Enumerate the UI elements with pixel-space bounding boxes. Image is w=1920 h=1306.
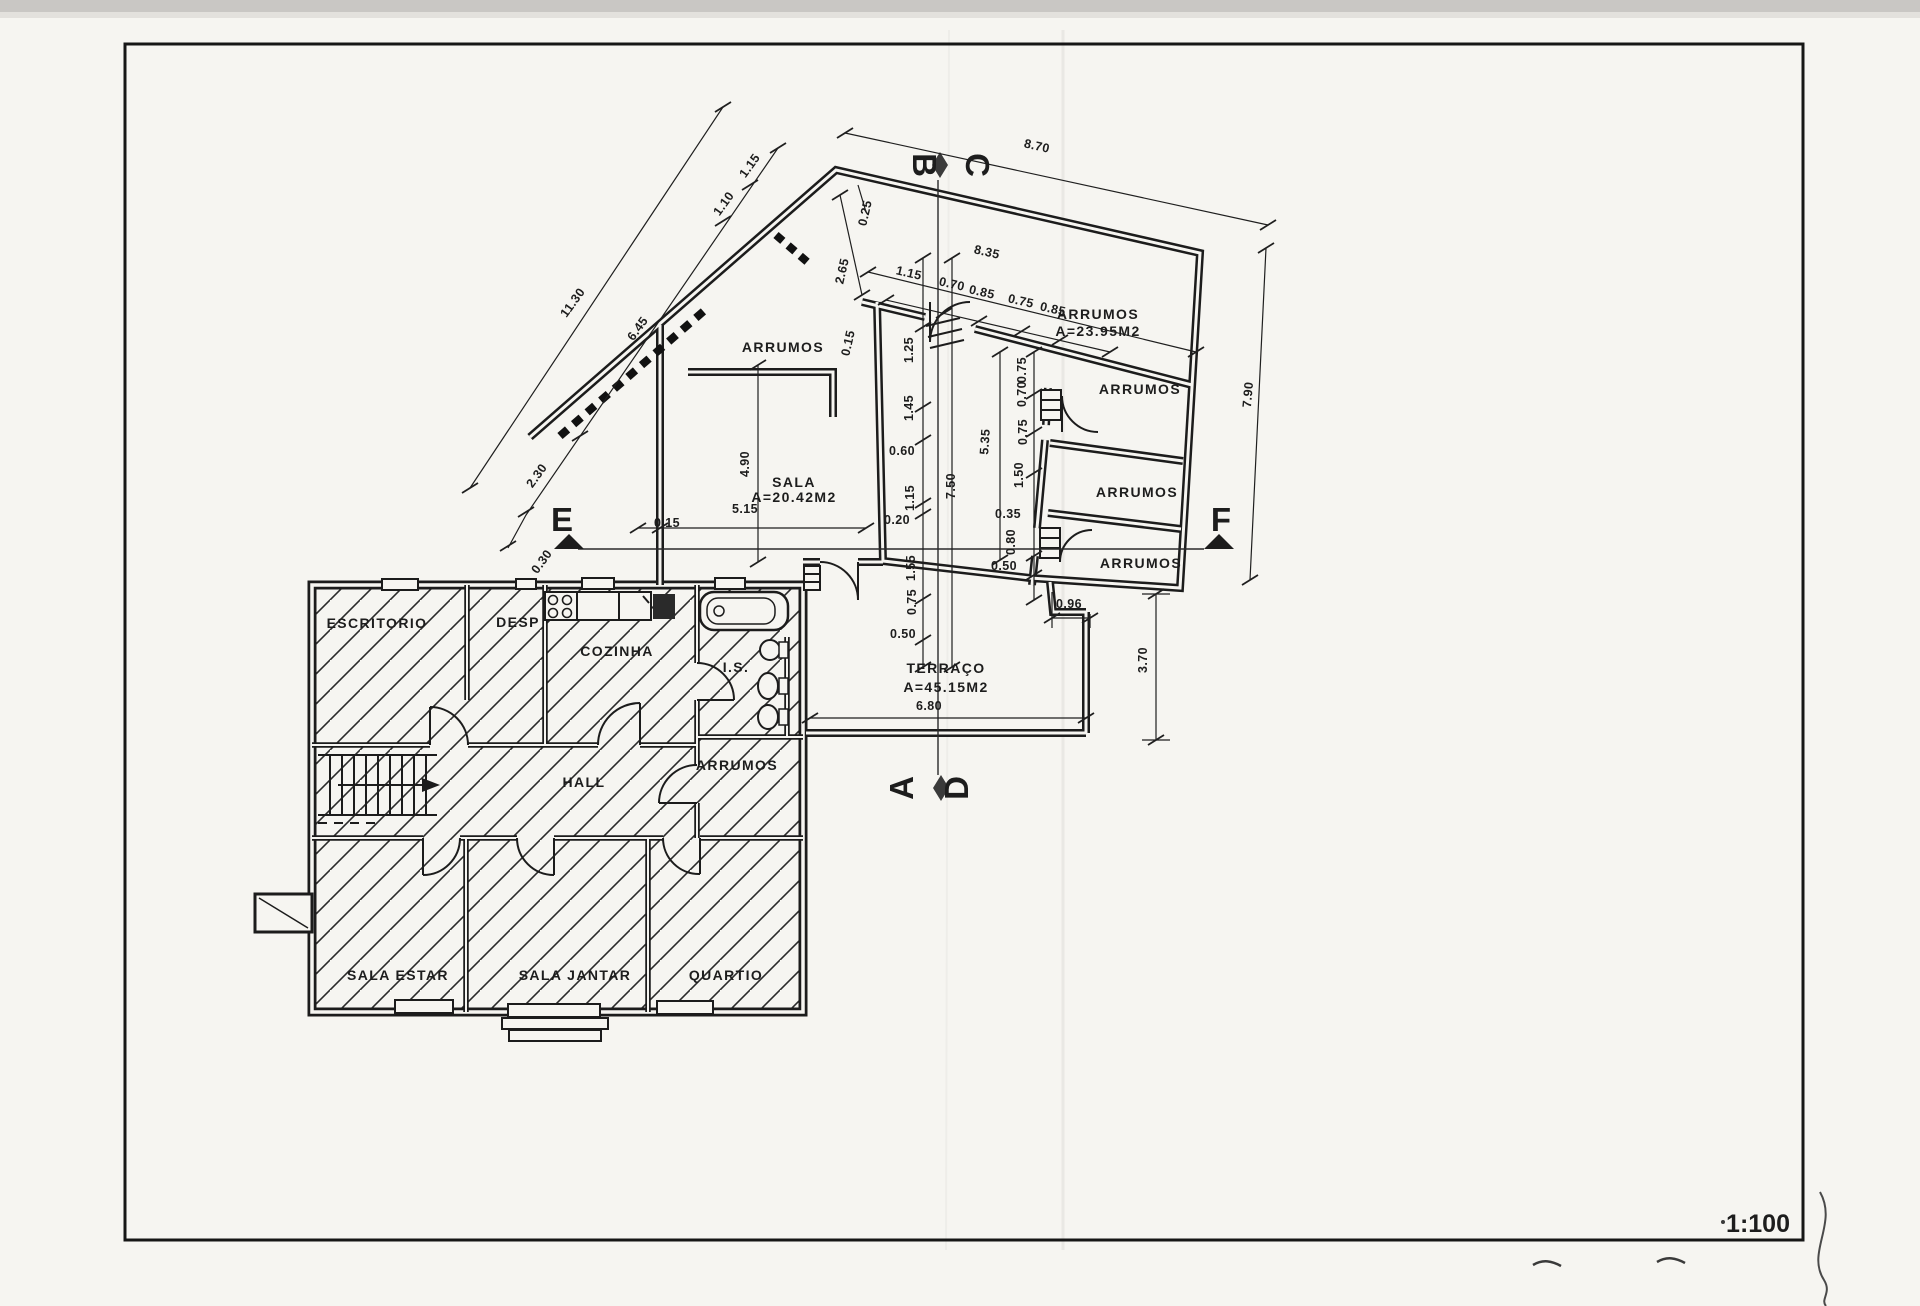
dimension-label: 11.30 [558,285,588,320]
dimension-label: 0.75 [1016,419,1030,445]
room-label: TERRAÇO [906,660,985,676]
room-label: COZINHA [580,643,654,659]
bidet [758,705,778,729]
dimension-label: 2.65 [832,257,851,285]
floor-plan-drawing: ARRUMOSARRUMOSA=23.95M2ARRUMOSARRUMOSARR… [0,0,1920,1306]
room-label: SALA JANTAR [519,967,632,983]
room-label: SALA ESTAR [347,967,449,983]
room-label: ARRUMOS [1100,555,1182,571]
dimension-label: 7.90 [1240,381,1256,408]
room-label: I.S. [723,659,750,675]
section-letter: E [551,501,573,538]
dimension-label: 0.80 [1004,529,1018,555]
dimension-label: 1.55 [904,555,918,581]
dimension-label: 1.25 [902,337,916,363]
counter [577,592,619,620]
dimension-label: 0.75 [905,589,919,615]
dimension-label: 0.75 [1007,291,1035,310]
washbasin [760,640,780,660]
dimension-label: 6.80 [916,699,942,713]
dimension-label: 0.85 [968,282,996,301]
dimension-label: 8.70 [1023,136,1051,155]
dimension-label: 0.75 [1015,357,1029,383]
dimension-label: 8.35 [973,242,1001,261]
room-label: ESCRITORIO [327,615,428,631]
dimension-label: 0.35 [995,507,1021,521]
dimension-label: 0.50 [991,559,1017,573]
dimension-label: 4.90 [738,451,752,477]
bottom-wall-windows [395,1000,713,1041]
dimension-label: 1.15 [903,485,917,511]
toilet [758,673,778,699]
dimension-label: 1.45 [902,395,916,421]
room-label: SALA [772,474,816,490]
room-label: ARRUMOS [742,339,824,355]
dimension-label: 5.15 [732,502,758,516]
room-label: A=45.15M2 [903,679,988,695]
room-label: ARRUMOS [1099,381,1181,397]
room-label: QUARTIO [689,967,763,983]
section-letter: D [938,776,975,800]
dimension-label: 1.50 [1012,462,1026,488]
dimension-label: 0.70 [938,274,966,293]
section-letter: C [959,153,996,177]
room-label: ARRUMOS [1057,306,1139,322]
scanned-floor-plan-sheet: ARRUMOSARRUMOSA=23.95M2ARRUMOSARRUMOSARR… [0,0,1920,1306]
room-label: ARRUMOS [696,757,778,773]
dimension-label: 0.15 [838,329,857,357]
entrance-step [502,1018,608,1029]
room-label: HALL [563,774,606,790]
counter [619,592,651,620]
dimension-label: 0.50 [890,627,916,641]
room-label: ARRUMOS [1096,484,1178,500]
section-letter: B [906,153,943,177]
dimension-label: 3.70 [1136,647,1150,673]
scale-label: 1:100 [1726,1210,1790,1238]
dimension-label: 7.50 [944,473,958,499]
fireplace [255,894,312,932]
hatched-wall-band [560,235,812,436]
dimension-label: 0.15 [654,516,680,530]
scan-artifacts [0,0,1920,1250]
kitchen-fixtures [545,592,675,620]
section-letter: A [883,776,920,800]
dimension-label: 0.96 [1056,597,1082,611]
room-label: A=23.95M2 [1055,323,1140,339]
dimension-label: 0.20 [884,513,910,527]
room-label: DESP [496,614,540,630]
room-label: A=20.42M2 [751,489,836,505]
sink [653,594,675,619]
dimension-label: 5.35 [977,428,993,455]
dimension-label: 0.30 [528,547,555,576]
dimension-label: 0.25 [855,199,874,227]
section-letter: F [1211,501,1231,538]
entrance-step [509,1030,601,1041]
dimension-label: 0.70 [1015,381,1029,407]
dimension-label: 0.60 [889,444,915,458]
house-hatched-floor [312,585,803,1012]
